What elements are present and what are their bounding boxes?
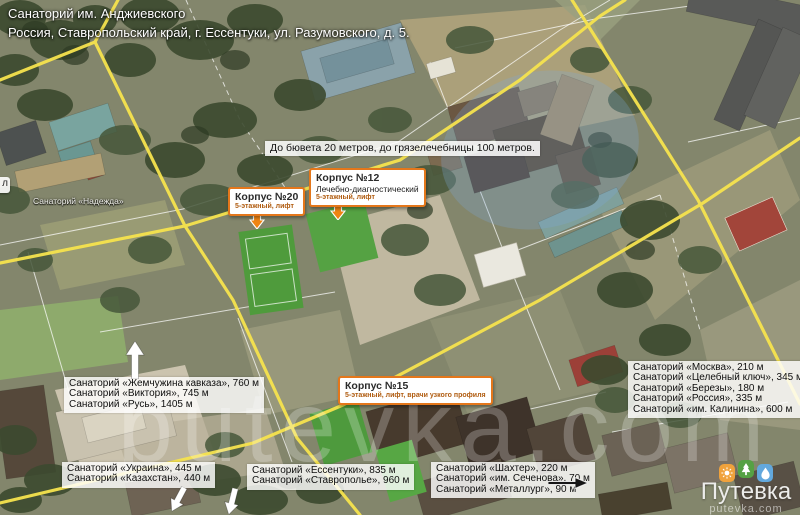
callout-subtitle: 5-этажный, лифт	[316, 194, 419, 202]
callout-subtitle: 5-этажный, лифт, врачи узкого профиля	[345, 392, 486, 400]
sanatorium-address: Россия, Ставропольский край, г. Ессентук…	[8, 23, 410, 42]
poi-label-nadezhda: Санаторий «Надежда»	[33, 196, 124, 206]
callout-korpus-20: Корпус №20 5-этажный, лифт	[228, 187, 305, 216]
callout-title: Корпус №12	[316, 172, 419, 184]
distance-box-west: Санаторий «Жемчужина кавказа», 760 м Сан…	[64, 377, 264, 413]
distance-box-southwest: Санаторий «Украина», 445 м Санаторий «Ка…	[62, 462, 215, 488]
satellite-map-image	[0, 0, 800, 515]
callout-title: Корпус №15	[345, 380, 486, 392]
logo-domain: putevka.com	[694, 503, 798, 515]
callout-line: Лечебно-диагностический	[316, 184, 419, 194]
distance-box-south: Санаторий «Ессентуки», 835 м Санаторий «…	[247, 464, 414, 490]
distance-line: Санаторий «им. Калинина», 600 м	[633, 405, 800, 415]
edge-label-chip: л	[0, 177, 10, 193]
callout-korpus-12: Корпус №12 Лечебно-диагностический 5-эта…	[309, 168, 426, 207]
distance-line: Санаторий «Казахстан», 440 м	[67, 474, 210, 484]
putevka-logo[interactable]: Путевка putevka.com	[694, 458, 798, 515]
logo-brand: Путевка	[694, 481, 798, 503]
right-arrow-icon	[548, 476, 588, 490]
callout-korpus-15: Корпус №15 5-этажный, лифт, врачи узкого…	[338, 376, 493, 405]
sanatorium-title: Санаторий им. Анджиевского	[8, 4, 410, 23]
callout-subtitle: 5-этажный, лифт	[235, 203, 298, 211]
up-arrow-icon	[124, 341, 146, 379]
distance-line: Санаторий «Ставрополье», 960 м	[252, 476, 409, 486]
map-screenshot: putevka.com Санаторий им. Анджиевского Р…	[0, 0, 800, 515]
distance-box-east: Санаторий «Москва», 210 м Санаторий «Цел…	[628, 361, 800, 418]
pin-tree-icon	[738, 460, 754, 478]
callout-title: Корпус №20	[235, 191, 298, 203]
distance-line: Санаторий «Русь», 1405 м	[69, 400, 259, 410]
map-header: Санаторий им. Анджиевского Россия, Ставр…	[8, 4, 410, 42]
distance-note: До бювета 20 метров, до грязелечебницы 1…	[265, 141, 540, 156]
